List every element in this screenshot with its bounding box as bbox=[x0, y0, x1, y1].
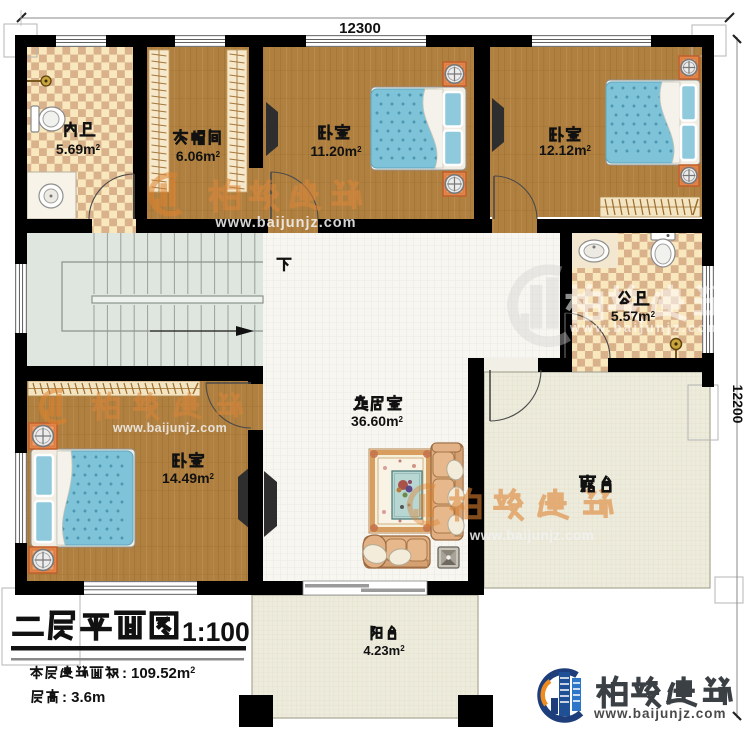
svg-text:www.baijunjz.com: www.baijunjz.com bbox=[593, 706, 727, 721]
svg-text:www.baijunjz.com: www.baijunjz.com bbox=[112, 421, 227, 435]
svg-text:36.60m2: 36.60m2 bbox=[351, 413, 403, 429]
svg-text:www.baijunjz.com: www.baijunjz.com bbox=[469, 528, 595, 543]
svg-text:: 3.6m: : 3.6m bbox=[62, 689, 105, 706]
svg-text:1:100: 1:100 bbox=[182, 617, 250, 647]
svg-text:14.49m2: 14.49m2 bbox=[162, 470, 214, 486]
svg-text:12.12m2: 12.12m2 bbox=[539, 142, 591, 158]
svg-text:4.23m2: 4.23m2 bbox=[363, 643, 405, 658]
svg-text:6.06m2: 6.06m2 bbox=[176, 148, 221, 164]
svg-text:12200: 12200 bbox=[730, 385, 746, 424]
svg-text:5.57m2: 5.57m2 bbox=[611, 308, 656, 324]
svg-text:5.69m2: 5.69m2 bbox=[56, 141, 101, 157]
svg-text:109.52m2: 109.52m2 bbox=[131, 665, 195, 682]
svg-text::: : bbox=[122, 665, 127, 682]
svg-text:11.20m2: 11.20m2 bbox=[310, 143, 362, 159]
svg-text:12300: 12300 bbox=[339, 20, 381, 37]
svg-text:www.baijunjz.com: www.baijunjz.com bbox=[214, 215, 356, 231]
